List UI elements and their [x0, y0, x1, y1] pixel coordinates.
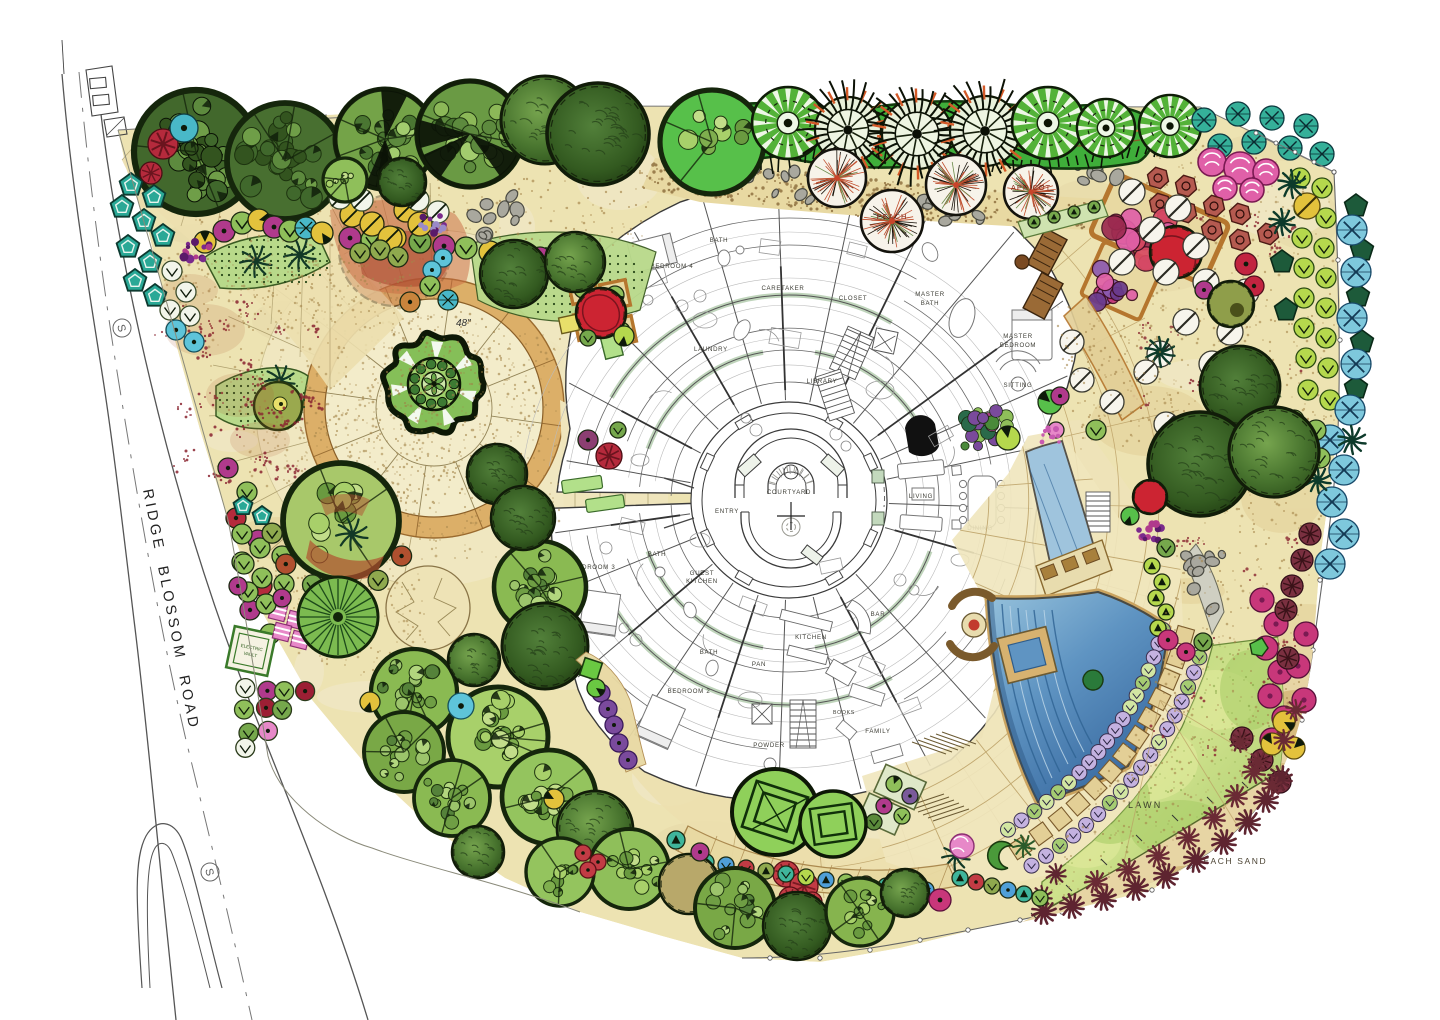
svg-text:BEDROOM 4: BEDROOM 4 [651, 263, 694, 270]
svg-text:BATH: BATH [648, 551, 667, 558]
svg-text:BATH: BATH [921, 300, 940, 307]
svg-text:BEDROOM: BEDROOM [1000, 342, 1036, 349]
svg-text:48″: 48″ [456, 318, 471, 329]
svg-text:FAMILY: FAMILY [865, 728, 890, 735]
svg-text:ENTRY: ENTRY [715, 508, 739, 515]
svg-text:GUEST: GUEST [690, 570, 715, 577]
svg-text:POWDER: POWDER [753, 742, 785, 749]
svg-text:PAN: PAN [752, 661, 766, 668]
svg-text:MASTER: MASTER [1003, 333, 1033, 340]
svg-text:KITCHEN: KITCHEN [795, 634, 827, 641]
svg-text:BEDROOM 2: BEDROOM 2 [668, 688, 711, 695]
svg-text:CLOSET: CLOSET [839, 295, 868, 302]
svg-text:BOOKS: BOOKS [833, 710, 855, 716]
svg-text:BATH: BATH [700, 649, 719, 656]
svg-text:LAUNDRY: LAUNDRY [694, 346, 728, 353]
svg-text:KITCHEN: KITCHEN [686, 578, 718, 585]
svg-text:LIVING: LIVING [909, 493, 933, 500]
svg-text:CARETAKER: CARETAKER [761, 285, 804, 292]
svg-text:COURTYARD: COURTYARD [767, 489, 811, 496]
svg-text:BATH: BATH [710, 237, 729, 244]
svg-text:MASTER: MASTER [915, 291, 945, 298]
svg-text:LAWN: LAWN [1128, 800, 1162, 810]
svg-text:BAR: BAR [871, 611, 886, 618]
svg-text:LIBRARY: LIBRARY [807, 378, 838, 385]
svg-text:SITTING: SITTING [1004, 382, 1033, 389]
